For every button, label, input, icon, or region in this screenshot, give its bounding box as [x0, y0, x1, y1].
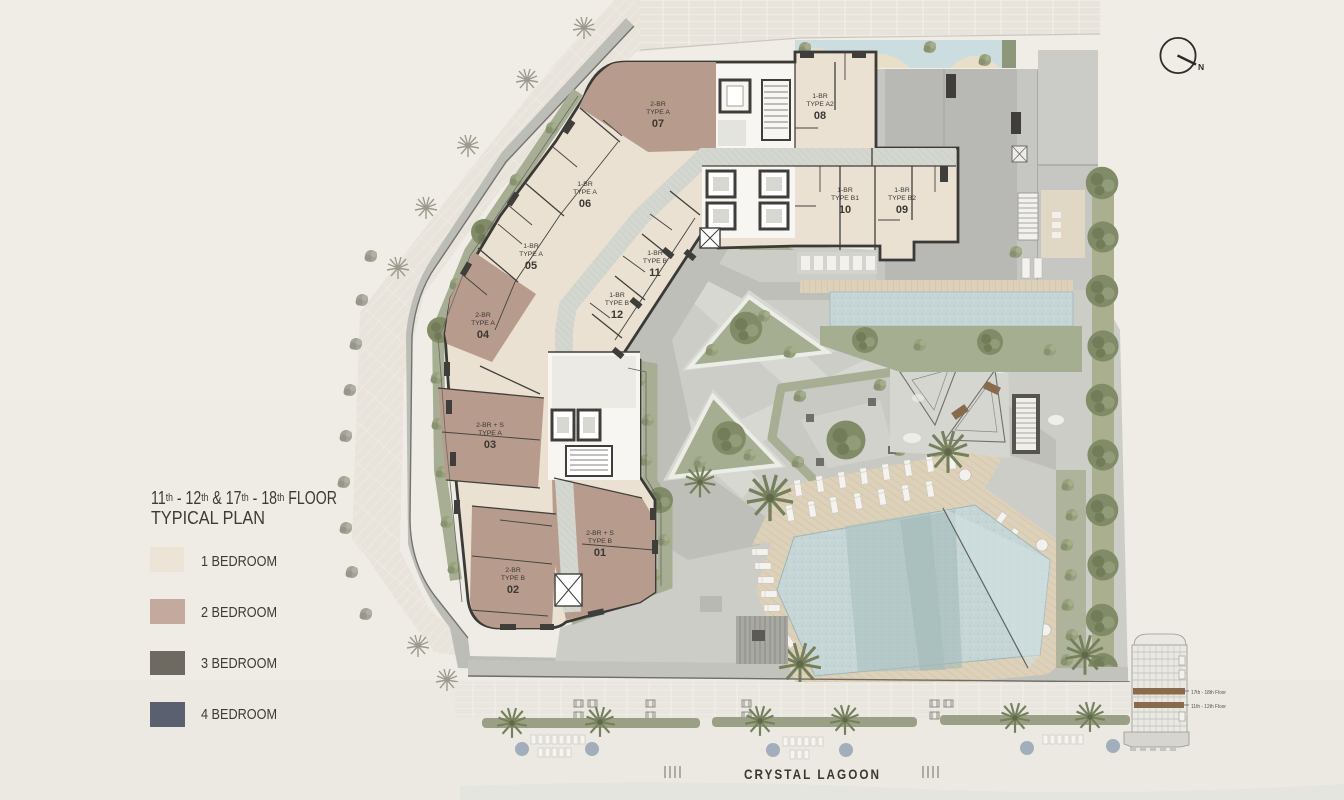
- svg-text:TYPE A: TYPE A: [573, 189, 597, 196]
- svg-text:2-BR: 2-BR: [505, 567, 521, 574]
- svg-text:TYPE B: TYPE B: [588, 538, 613, 545]
- svg-text:2-BR: 2-BR: [475, 312, 491, 319]
- svg-text:1-BR: 1-BR: [812, 93, 828, 100]
- svg-text:2-BR: 2-BR: [650, 101, 666, 108]
- svg-text:02: 02: [507, 584, 519, 596]
- svg-text:3 BEDROOM: 3 BEDROOM: [201, 656, 277, 672]
- svg-text:TYPE A2: TYPE A2: [806, 101, 834, 108]
- svg-text:1-BR: 1-BR: [577, 181, 593, 188]
- svg-text:11: 11: [649, 267, 661, 279]
- svg-text:04: 04: [477, 329, 490, 341]
- svg-text:CRYSTAL LAGOON: CRYSTAL LAGOON: [744, 766, 881, 782]
- svg-text:2-BR + S: 2-BR + S: [476, 422, 504, 429]
- svg-text:08: 08: [814, 110, 826, 122]
- svg-text:1-BR: 1-BR: [837, 187, 853, 194]
- svg-text:TYPE B: TYPE B: [643, 258, 668, 265]
- svg-text:TYPE B: TYPE B: [501, 575, 526, 582]
- svg-text:11th - 12th Floor: 11th - 12th Floor: [1191, 704, 1226, 710]
- svg-text:TYPE B1: TYPE B1: [831, 195, 859, 202]
- svg-text:01: 01: [594, 547, 606, 559]
- svg-text:TYPICAL PLAN: TYPICAL PLAN: [151, 508, 265, 528]
- svg-text:07: 07: [652, 118, 664, 130]
- svg-text:TYPE B: TYPE B: [605, 300, 630, 307]
- svg-text:1-BR: 1-BR: [894, 187, 910, 194]
- svg-text:06: 06: [579, 198, 591, 210]
- svg-text:1 BEDROOM: 1 BEDROOM: [201, 554, 277, 570]
- svg-text:N: N: [1198, 62, 1204, 72]
- svg-text:TYPE A: TYPE A: [478, 430, 502, 437]
- svg-text:1-BR: 1-BR: [609, 292, 625, 299]
- svg-text:TYPE A: TYPE A: [519, 251, 543, 258]
- svg-text:TYPE B2: TYPE B2: [888, 195, 916, 202]
- svg-text:4 BEDROOM: 4 BEDROOM: [201, 707, 277, 723]
- svg-text:05: 05: [525, 260, 537, 272]
- svg-text:2 BEDROOM: 2 BEDROOM: [201, 605, 277, 621]
- svg-text:03: 03: [484, 439, 496, 451]
- svg-text:2-BR + S: 2-BR + S: [586, 530, 614, 537]
- svg-text:10: 10: [839, 204, 851, 216]
- svg-text:17th - 18th Floor: 17th - 18th Floor: [1191, 690, 1226, 696]
- svg-text:12: 12: [611, 309, 623, 321]
- svg-text:09: 09: [896, 204, 908, 216]
- svg-text:1-BR: 1-BR: [523, 243, 539, 250]
- svg-text:TYPE A: TYPE A: [646, 109, 670, 116]
- svg-text:TYPE A: TYPE A: [471, 320, 495, 327]
- svg-text:1-BR: 1-BR: [647, 250, 663, 257]
